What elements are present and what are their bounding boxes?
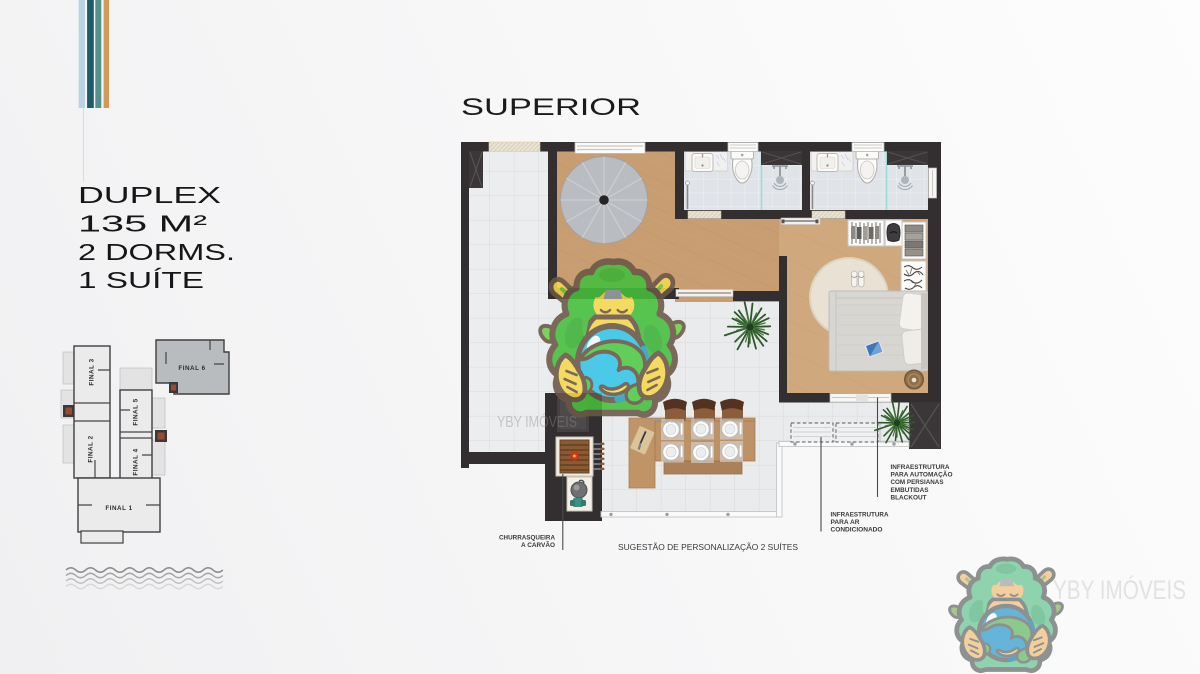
svg-text:A CARVÃO: A CARVÃO — [521, 540, 555, 549]
svg-text:EMBUTIDAS: EMBUTIDAS — [891, 487, 930, 494]
svg-text:PARA AUTOMAÇÃO: PARA AUTOMAÇÃO — [891, 470, 953, 479]
svg-text:FINAL 1: FINAL 1 — [105, 505, 132, 512]
svg-text:INFRAESTRUTURA: INFRAESTRUTURA — [831, 512, 889, 519]
svg-text:FINAL 6: FINAL 6 — [178, 365, 205, 372]
svg-text:INFRAESTRUTURA: INFRAESTRUTURA — [891, 464, 950, 471]
svg-text:COM PERSIANAS: COM PERSIANAS — [891, 479, 945, 486]
svg-text:135 M²: 135 M² — [78, 211, 207, 237]
svg-text:DUPLEX: DUPLEX — [78, 182, 221, 208]
svg-text:CRECI J24.731: CRECI J24.731 — [645, 418, 698, 425]
svg-text:YBY IMÓVEIS: YBY IMÓVEIS — [497, 412, 577, 431]
svg-text:YBY IMÓVEIS: YBY IMÓVEIS — [1053, 574, 1186, 605]
svg-text:2 DORMS.: 2 DORMS. — [78, 239, 235, 265]
svg-text:FINAL 3: FINAL 3 — [89, 358, 96, 385]
svg-text:CHURRASQUEIRA: CHURRASQUEIRA — [499, 535, 555, 542]
svg-text:FINAL 2: FINAL 2 — [88, 435, 95, 462]
svg-text:PARA AR: PARA AR — [831, 519, 860, 526]
svg-text:SUGESTÃO DE PERSONALIZAÇÃO 2: SUGESTÃO DE PERSONALIZAÇÃO 2 SUÍTES — [618, 542, 799, 552]
svg-text:SUPERIOR: SUPERIOR — [461, 94, 641, 121]
svg-text:FINAL 5: FINAL 5 — [133, 398, 140, 425]
svg-text:FINAL 4: FINAL 4 — [133, 448, 140, 475]
svg-text:1 SUÍTE: 1 SUÍTE — [78, 267, 204, 293]
svg-text:BLACKOUT: BLACKOUT — [891, 495, 927, 502]
svg-text:CONDICIONADO: CONDICIONADO — [831, 527, 883, 534]
